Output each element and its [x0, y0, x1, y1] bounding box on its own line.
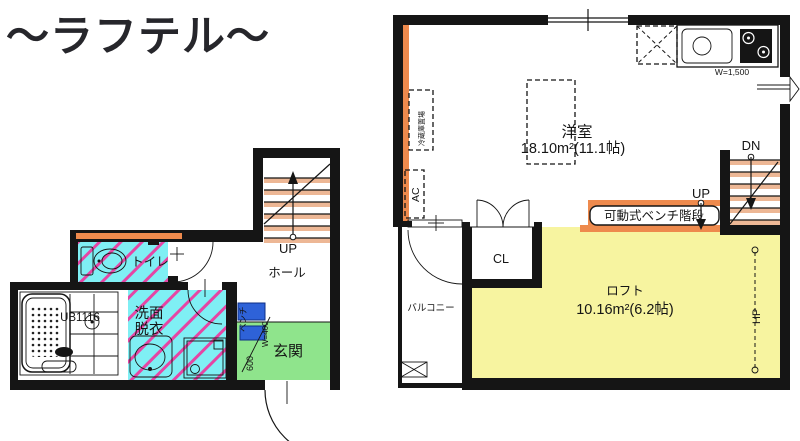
- window-icon: [548, 9, 628, 31]
- floor2-plan: 洋室 18.10m²(11.1帖) W=1,500 冷蔵庫置場 AC DN UP…: [393, 9, 799, 390]
- accent-wall-strip: [403, 25, 409, 221]
- up-label: UP: [279, 241, 297, 256]
- wall: [534, 222, 542, 227]
- bench-stairs-label: 可動式ベンチ階段: [604, 208, 704, 223]
- wall: [462, 279, 542, 288]
- wall: [330, 148, 340, 390]
- wall: [10, 282, 188, 290]
- floor-plan-page: 〜ラフテル〜: [0, 0, 800, 441]
- kitchen-counter: [677, 25, 778, 67]
- dn-label: DN: [742, 138, 761, 153]
- wall: [462, 227, 472, 383]
- up-label: UP: [692, 186, 710, 201]
- wall: [532, 227, 542, 287]
- bench-label: ベンチ: [238, 306, 248, 332]
- vent-window-icon: [757, 77, 799, 104]
- kitchen-width-label: W=1,500: [715, 67, 750, 77]
- stove-icon: [740, 29, 772, 63]
- wall: [226, 282, 237, 380]
- balcony-door-icon: [408, 215, 462, 284]
- wall: [10, 380, 265, 390]
- closet-label: CL: [493, 252, 509, 266]
- bathtub-icon: [29, 307, 61, 357]
- fridge-label: 冷蔵庫置場: [417, 111, 426, 146]
- closet-door-icon: [462, 200, 542, 227]
- ac-label: AC: [410, 187, 422, 202]
- wall: [780, 15, 790, 390]
- wall: [393, 15, 403, 227]
- accent-wall-strip: [580, 225, 720, 232]
- entrance-door-icon: [265, 381, 332, 441]
- loft-area-label: 10.16m²(6.2帖): [576, 301, 674, 318]
- bench-depth-label: 600: [245, 356, 255, 371]
- stairs-up-icon: [264, 164, 330, 243]
- loft-label: ロフト: [606, 284, 644, 298]
- entrance-label: 玄関: [273, 343, 303, 360]
- wall: [462, 378, 790, 390]
- accent-wall-strip: [76, 233, 182, 239]
- hanger-pipe-label: HP: [751, 309, 763, 324]
- room-area-label: 18.10m²(11.1帖): [521, 140, 626, 157]
- drain-box-icon: [401, 362, 427, 377]
- balcony-label: バルコニー: [407, 303, 454, 314]
- wall: [253, 148, 263, 242]
- wall: [720, 150, 730, 235]
- floor1-plan: UP ホール トイレ 洗面 脱衣 UB1116 玄関 ベンチ W=400 600: [10, 148, 340, 441]
- washroom-label: 洗面: [135, 305, 164, 322]
- balcony-rail: [398, 227, 402, 383]
- wall: [10, 282, 18, 390]
- floor-plan-canvas: UP ホール トイレ 洗面 脱衣 UB1116 玄関 ベンチ W=400 600: [0, 0, 800, 441]
- stairs-down-icon: [730, 154, 780, 225]
- balcony-rail: [398, 383, 466, 388]
- wall: [462, 222, 470, 227]
- washroom-label: 脱衣: [135, 321, 164, 338]
- bench-width-label: W=400: [261, 321, 270, 347]
- hall-label: ホール: [268, 266, 306, 280]
- wall: [720, 225, 780, 235]
- wall: [168, 276, 178, 282]
- wall: [393, 221, 412, 227]
- wall: [253, 148, 340, 158]
- shower-mixer-icon: [55, 347, 73, 357]
- refrigerator-space-icon: [637, 26, 677, 64]
- bath-unit-label: UB1116: [60, 312, 100, 324]
- bath-unit-icon: [20, 292, 118, 375]
- room-label: 洋室: [561, 123, 592, 141]
- balcony: [398, 215, 466, 388]
- toilet-label: トイレ: [131, 255, 169, 269]
